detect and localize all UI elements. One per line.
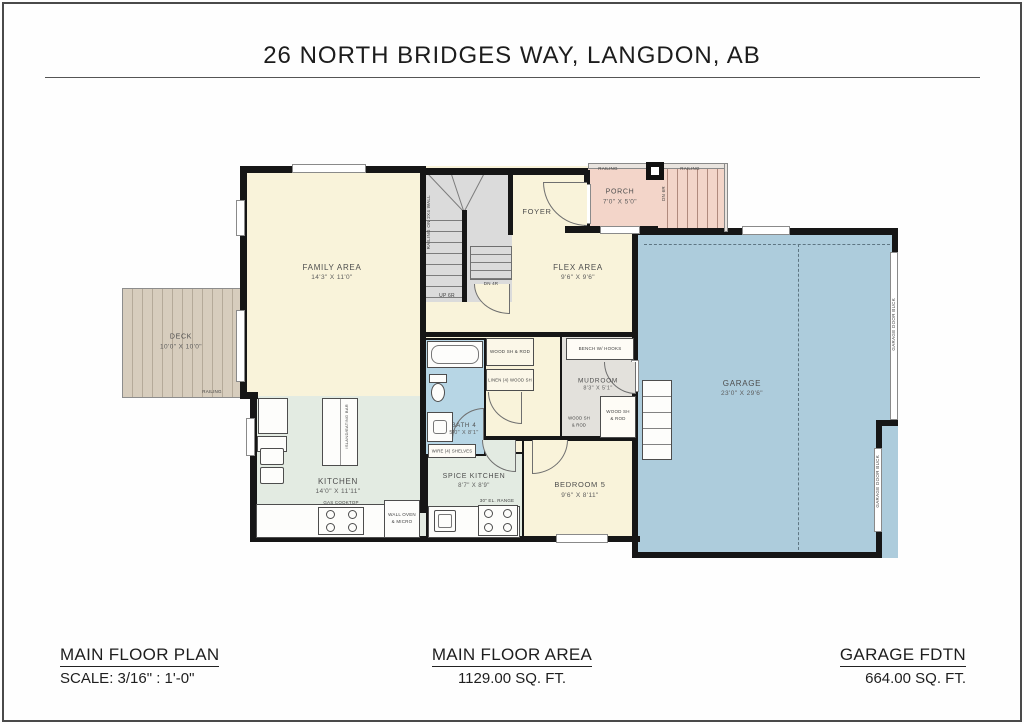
- window: [600, 226, 640, 234]
- stair-dn-flight: [470, 246, 512, 280]
- toilet-bowl: [431, 383, 445, 402]
- garage-door-buck-label: GARAGE DOOR BUCK: [875, 455, 880, 508]
- island-label: ISLAND/EATING BAR: [344, 404, 349, 449]
- flex-area-label: FLEX AREA 9'6" X 9'6": [553, 262, 603, 282]
- family-area-label: FAMILY AREA 14'3" X 11'0": [303, 262, 362, 282]
- deck-label: DECK 10'0" X 10'0": [160, 333, 202, 352]
- burner: [348, 523, 357, 532]
- burner: [348, 510, 357, 519]
- stair-up-flight: [426, 210, 462, 300]
- wall: [876, 530, 882, 558]
- mudroom-closet-label-2: & ROD: [610, 416, 625, 422]
- mudroom-closet-label-1: WOOD SH: [606, 409, 629, 415]
- bath-4-label: BATH 4 5'0" X 8'1": [449, 422, 478, 438]
- window: [742, 226, 790, 235]
- window: [236, 200, 245, 236]
- window: [292, 164, 366, 173]
- railing-2x4-label: RAILING ON 2X4 WALL: [426, 195, 431, 249]
- foundation-dashed-line: [644, 244, 890, 245]
- floor-plan: GARAGE DOOR BUCK GARAGE DOOR BUCK ISLAND…: [0, 0, 1024, 724]
- electric-range: [478, 505, 518, 536]
- burner: [484, 523, 493, 532]
- mudroom-side-closet-label-2: & ROD: [572, 422, 586, 427]
- window: [246, 418, 255, 456]
- burner: [503, 509, 512, 518]
- kitchen-label: KITCHEN 14'0" X 11'11": [316, 476, 361, 496]
- electric-range-label: 30" EL. RANGE: [480, 498, 514, 504]
- dn-4r-label: DN 4R: [484, 281, 499, 287]
- deck-railing-label: RAILING: [202, 389, 221, 395]
- stair-winders: [424, 170, 512, 212]
- spice-sink-basin: [438, 514, 452, 528]
- wall: [420, 313, 426, 513]
- kitchen-sink: [260, 467, 284, 484]
- wall: [508, 170, 513, 235]
- wall-oven-label-2: & MICRO: [392, 519, 413, 525]
- garage-door-buck-label: GARAGE DOOR BUCK: [891, 298, 896, 351]
- spice-kitchen-label: SPICE KITCHEN 8'7" X 8'9": [443, 472, 506, 490]
- gas-cooktop: [318, 507, 364, 535]
- wall: [424, 332, 638, 337]
- wall-oven-label-1: WALL OVEN: [388, 512, 416, 518]
- footer-garage-detail: 664.00 SQ. FT.: [840, 670, 966, 687]
- foundation-dashed-line: [798, 244, 799, 550]
- burner: [503, 523, 512, 532]
- burner: [484, 509, 493, 518]
- room-porch-stairs: [658, 163, 728, 232]
- spice-sink: [434, 510, 456, 532]
- garage-steps: [642, 380, 672, 460]
- up-6r-label: UP 6R: [439, 293, 455, 300]
- refrigerator: [258, 398, 288, 434]
- wire-shelves-label: WIRE (4) SHELVES: [432, 448, 473, 453]
- wall: [424, 168, 588, 175]
- wall: [892, 228, 898, 254]
- foyer-label: FOYER: [522, 207, 551, 218]
- burner: [326, 523, 335, 532]
- stairs-railing-label: RAILING: [680, 166, 699, 172]
- toilet-tank: [429, 374, 447, 383]
- wall: [876, 420, 882, 450]
- gas-cooktop-label: GAS COOKTOP: [323, 500, 358, 506]
- kitchen-island: [322, 398, 358, 466]
- mudroom-label: MUDROOM 8'3" X 5'1": [578, 377, 618, 394]
- garage-label: GARAGE 23'0" X 29'6": [721, 378, 763, 398]
- window: [236, 310, 245, 382]
- coat-closet-label: WOOD SH & ROD: [490, 349, 530, 355]
- burner: [326, 510, 335, 519]
- mudroom-side-closet-label-1: WOOD SH: [568, 415, 590, 420]
- footer-garage: GARAGE FDTN 664.00 SQ. FT.: [840, 645, 966, 687]
- kitchen-sink: [260, 448, 284, 465]
- stair-divider-wall: [462, 210, 467, 302]
- porch-label: PORCH 7'0" X 5'0": [603, 188, 637, 207]
- wall: [634, 552, 882, 558]
- dn-6r-label: DN 6R: [661, 186, 666, 201]
- mudroom-bench-label: BENCH W/ HOOKS: [579, 346, 622, 352]
- bathtub: [427, 341, 483, 368]
- porch-railing-label: RAILING: [598, 166, 617, 172]
- footer-garage-heading: GARAGE FDTN: [840, 645, 966, 667]
- tub-basin: [431, 345, 479, 364]
- vanity-sink: [433, 420, 447, 434]
- linen-closet-label: LINEN (4) WOOD SH: [488, 377, 532, 382]
- porch-post: [646, 162, 664, 180]
- window: [556, 534, 608, 543]
- porch-railing: [724, 163, 728, 232]
- bedroom-5-label: BEDROOM 5 9'6" X 8'11": [554, 480, 605, 500]
- room-garage: [638, 228, 898, 558]
- footer-area-heading: MAIN FLOOR AREA: [432, 645, 592, 667]
